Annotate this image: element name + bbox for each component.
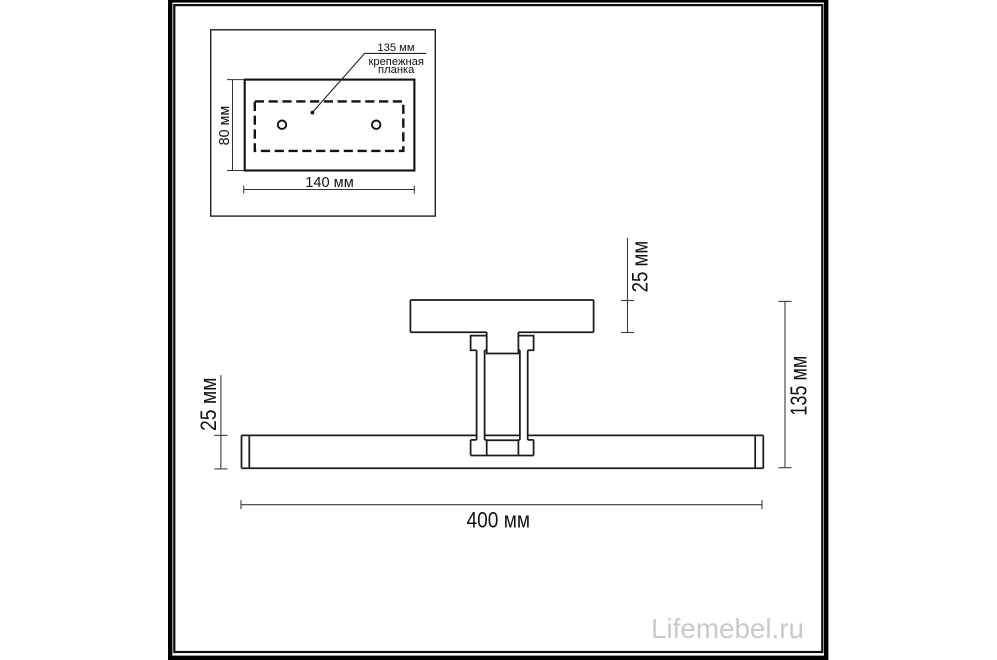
svg-text:80 мм: 80 мм <box>216 106 233 146</box>
svg-text:135 мм: 135 мм <box>377 42 414 54</box>
svg-text:Lifemebel.ru: Lifemebel.ru <box>651 613 804 644</box>
svg-text:25 мм: 25 мм <box>627 241 652 293</box>
svg-text:400 мм: 400 мм <box>467 507 531 532</box>
svg-text:135 мм: 135 мм <box>786 356 812 416</box>
svg-text:140 мм: 140 мм <box>305 174 354 191</box>
svg-text:планка: планка <box>378 64 415 76</box>
svg-text:25 мм: 25 мм <box>196 378 221 432</box>
